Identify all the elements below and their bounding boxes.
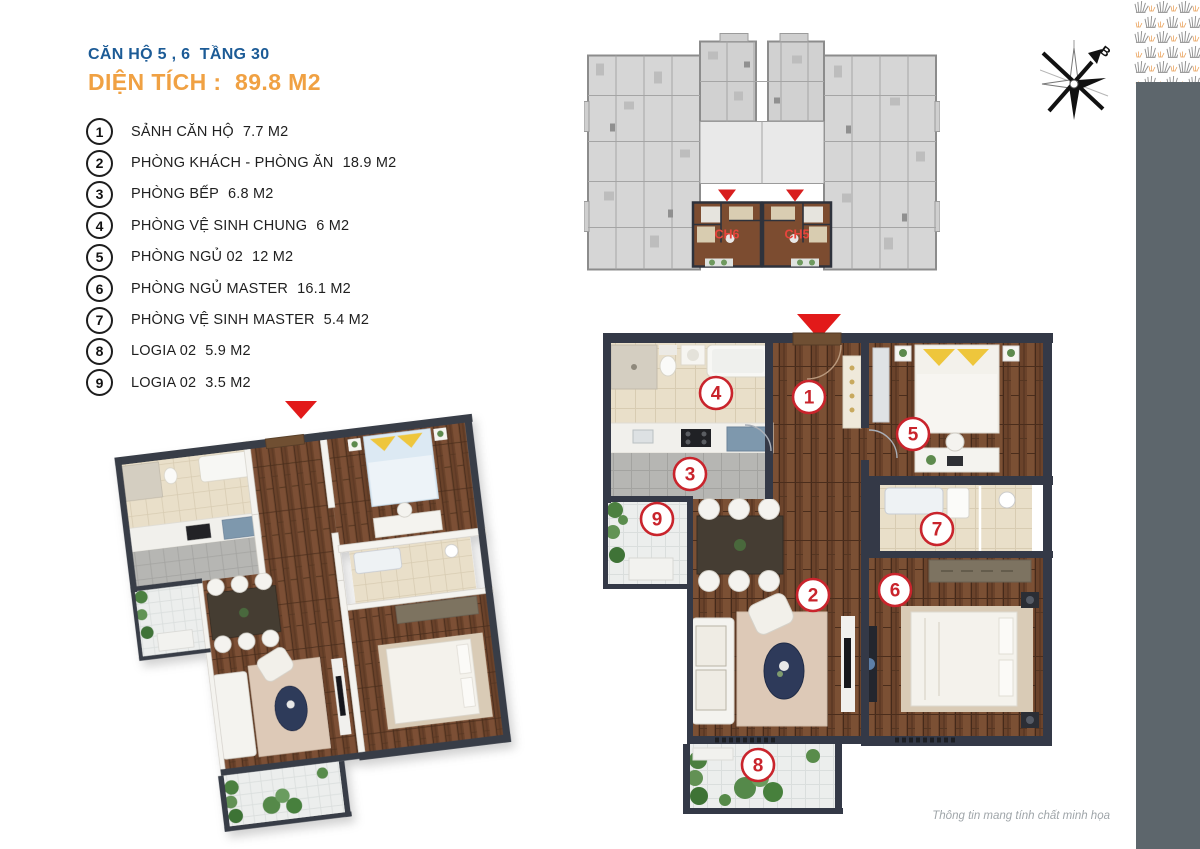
legend-area: 5.9 M2 [205, 343, 251, 359]
area-title: DIỆN TÍCH : 89.8 M2 [88, 69, 321, 96]
legend-item-7: 7PHÒNG VỆ SINH MASTER5.4 M2 [86, 304, 396, 335]
legend-num-5: 5 [86, 244, 113, 271]
legend-name: LOGIA 02 [131, 375, 196, 391]
entrance-arrow-keyplan-left [718, 190, 736, 202]
legend-area: 18.9 M2 [343, 155, 397, 171]
legend-area: 5.4 M2 [324, 312, 370, 328]
room-marker-2-num: 2 [808, 586, 819, 607]
plan2d-rooms [603, 333, 1053, 814]
disclaimer-note: Thông tin mang tính chất minh họa [800, 810, 1110, 822]
floor-key-plan: CH6 CH5 [584, 30, 940, 278]
brand-pattern [1134, 0, 1200, 84]
legend-area: 6.8 M2 [228, 186, 274, 202]
legend-name: SẢNH CĂN HỘ [131, 124, 234, 140]
legend-area: 6 M2 [316, 218, 349, 234]
room-marker-8-num: 8 [753, 756, 764, 777]
sidebar-bar [1136, 82, 1200, 849]
room-legend: 1SẢNH CĂN HỘ7.7 M2 2PHÒNG KHÁCH - PHÒNG … [86, 116, 396, 399]
legend-name: PHÒNG NGỦ 02 [131, 249, 243, 265]
room-marker-9: 9 [641, 503, 673, 535]
legend-item-1: 1SẢNH CĂN HỘ7.7 M2 [86, 116, 396, 147]
plan3d-body [114, 414, 518, 840]
legend-item-3: 3PHÒNG BẾP6.8 M2 [86, 179, 396, 210]
room-marker-7: 7 [921, 513, 953, 545]
room-marker-7-num: 7 [932, 520, 943, 541]
legend-item-6: 6PHÒNG NGỦ MASTER16.1 M2 [86, 273, 396, 304]
legend-area: 12 M2 [252, 249, 293, 265]
room-marker-6-num: 6 [890, 581, 901, 602]
unit-label-ch6: CH6 [714, 228, 739, 242]
legend-area: 3.5 M2 [205, 375, 251, 391]
legend-area: 7.7 M2 [243, 124, 289, 140]
legend-name: PHÒNG VỆ SINH MASTER [131, 312, 315, 328]
legend-num-3: 3 [86, 181, 113, 208]
unit-plan-2d: 1 2 3 4 5 6 7 8 9 [595, 308, 1060, 823]
room-marker-8: 8 [742, 749, 774, 781]
legend-num-9: 9 [86, 369, 113, 396]
legend-name: PHÒNG KHÁCH - PHÒNG ĂN [131, 155, 334, 171]
legend-num-4: 4 [86, 212, 113, 239]
legend-name: LOGIA 02 [131, 343, 196, 359]
legend-num-8: 8 [86, 338, 113, 365]
legend-item-5: 5PHÒNG NGỦ 0212 M2 [86, 242, 396, 273]
unit-plan-3d [112, 390, 517, 802]
room-marker-4-num: 4 [711, 384, 722, 405]
room-marker-3-num: 3 [685, 465, 696, 486]
room-marker-2: 2 [797, 579, 829, 611]
unit-label-ch5: CH5 [784, 228, 809, 242]
legend-num-7: 7 [86, 307, 113, 334]
room-marker-1-num: 1 [804, 388, 815, 409]
room-marker-3: 3 [674, 458, 706, 490]
title-block: CĂN HỘ 5 , 6 TẦNG 30 DIỆN TÍCH : 89.8 M2 [88, 46, 321, 96]
legend-name: PHÒNG NGỦ MASTER [131, 281, 288, 297]
legend-num-1: 1 [86, 118, 113, 145]
apartment-subtitle: CĂN HỘ 5 , 6 TẦNG 30 [88, 46, 321, 64]
legend-name: PHÒNG BẾP [131, 186, 219, 202]
room-marker-4: 4 [700, 377, 732, 409]
entrance-arrow-3d [285, 401, 317, 419]
legend-num-6: 6 [86, 275, 113, 302]
room-marker-9-num: 9 [652, 510, 663, 531]
legend-item-2: 2PHÒNG KHÁCH - PHÒNG ĂN18.9 M2 [86, 147, 396, 178]
legend-num-2: 2 [86, 150, 113, 177]
room-marker-1: 1 [793, 381, 825, 413]
entrance-arrow-keyplan-right [786, 190, 804, 202]
room-marker-6: 6 [879, 574, 911, 606]
legend-name: PHÒNG VỆ SINH CHUNG [131, 218, 307, 234]
legend-area: 16.1 M2 [297, 281, 351, 297]
room-marker-5-num: 5 [908, 425, 919, 446]
room-marker-5: 5 [897, 418, 929, 450]
legend-item-4: 4PHÒNG VỆ SINH CHUNG6 M2 [86, 210, 396, 241]
compass-icon: B [1040, 40, 1110, 125]
brochure-page: CĂN HỘ 5 , 6 TẦNG 30 DIỆN TÍCH : 89.8 M2… [0, 0, 1200, 849]
legend-item-8: 8LOGIA 025.9 M2 [86, 336, 396, 367]
